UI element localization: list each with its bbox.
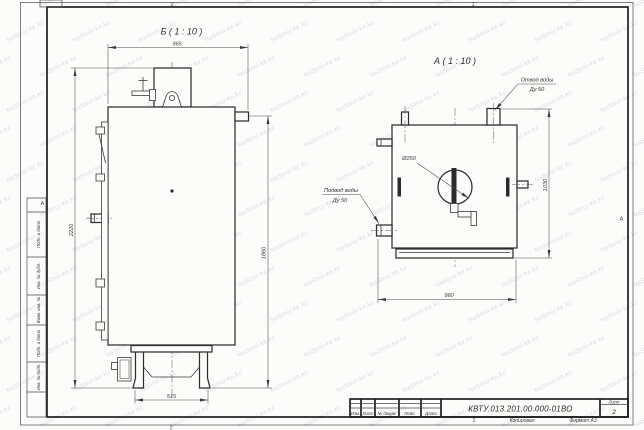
zone-letter-left: А <box>41 201 45 207</box>
base-assembly <box>112 346 213 389</box>
inner-slot-left <box>398 178 402 197</box>
ash-door-handle <box>112 363 118 370</box>
svg-text:Ø250: Ø250 <box>401 156 417 162</box>
zone-number-bottom-left: 2 <box>169 426 172 430</box>
body-center-mark <box>170 189 173 192</box>
svg-text:1860: 1860 <box>262 246 268 259</box>
view-a-label: А ( 1 : 10 ) <box>433 56 476 66</box>
tb-col-izm: Изм. <box>351 411 360 416</box>
svg-text:Ду 50: Ду 50 <box>332 198 348 204</box>
drawing-sheet: NaStroi-ke.kzNaStroi-ke.kzNaStroi-ke.kzN… <box>0 0 644 430</box>
door-hinge-strip <box>96 122 108 340</box>
outlet-pipe-stub <box>235 112 249 121</box>
side-panel-label: Инв. № дубл. <box>36 263 41 289</box>
zone-number-top-right: 1 <box>471 2 474 8</box>
tb-footer-zone: 1 <box>472 418 475 424</box>
top-left-margin-box <box>40 0 62 7</box>
svg-text:Отвод воды: Отвод воды <box>521 78 554 84</box>
zone-number-top-left: 2 <box>170 2 173 8</box>
drawing-designation: КВТУ.013.201.00.000-01ВО <box>468 405 572 414</box>
dim-base-515: 515 <box>135 390 208 404</box>
tb-col-doc: № докум. <box>378 411 397 416</box>
svg-text:Ду 50: Ду 50 <box>529 87 545 93</box>
svg-text:960: 960 <box>444 293 454 299</box>
tb-col-date: Дата <box>424 411 437 416</box>
tb-sheet-number: 2 <box>611 409 616 416</box>
side-panel-label: Инв. № подл. <box>36 364 41 391</box>
view-b: Б ( 1 : 10 ) <box>69 27 272 404</box>
svg-text:515: 515 <box>167 394 177 400</box>
tb-footer-copy: Копировал <box>510 418 535 424</box>
svg-text:1030: 1030 <box>543 178 549 191</box>
drawing-svg: 2 1 2 А А Подп. и дата Инв. № дубл. Взам… <box>0 0 644 430</box>
bottom-flange <box>396 249 513 258</box>
tb-footer-format: Формат А3 <box>569 418 597 424</box>
svg-text:965: 965 <box>172 41 182 47</box>
svg-text:Подвод воды: Подвод воды <box>324 188 358 194</box>
callout-water-inlet: Подвод воды Ду 50 <box>322 188 379 224</box>
tb-col-list: Лист <box>361 411 373 416</box>
tb-sheet-label: Лист <box>607 400 619 405</box>
chimney-damper-bar <box>452 168 457 204</box>
inner-slot-right <box>506 178 510 197</box>
view-b-label: Б ( 1 : 10 ) <box>161 27 203 37</box>
title-block: Изм. Лист № докум. Подп. Дата КВТУ.013.2… <box>350 399 628 424</box>
svg-text:2220: 2220 <box>69 223 75 237</box>
side-panel-label: Подп. и дата <box>36 329 41 357</box>
left-upper-pipe-stub <box>377 139 392 146</box>
side-panel-label: Подп. и дата <box>36 220 41 248</box>
view-a: А ( 1 : 10 ) <box>322 56 556 303</box>
callout-water-outlet: Отвод воды Ду 50 <box>495 78 556 111</box>
tb-col-sign: Подп. <box>404 411 415 416</box>
side-panel: Подп. и дата Инв. № дубл. Взам. инв. № П… <box>27 198 46 417</box>
side-panel-label: Взам. инв. № <box>36 296 41 323</box>
boiler-body <box>108 107 235 345</box>
zone-letter-right: А <box>620 217 624 223</box>
damper-lever <box>132 77 156 101</box>
